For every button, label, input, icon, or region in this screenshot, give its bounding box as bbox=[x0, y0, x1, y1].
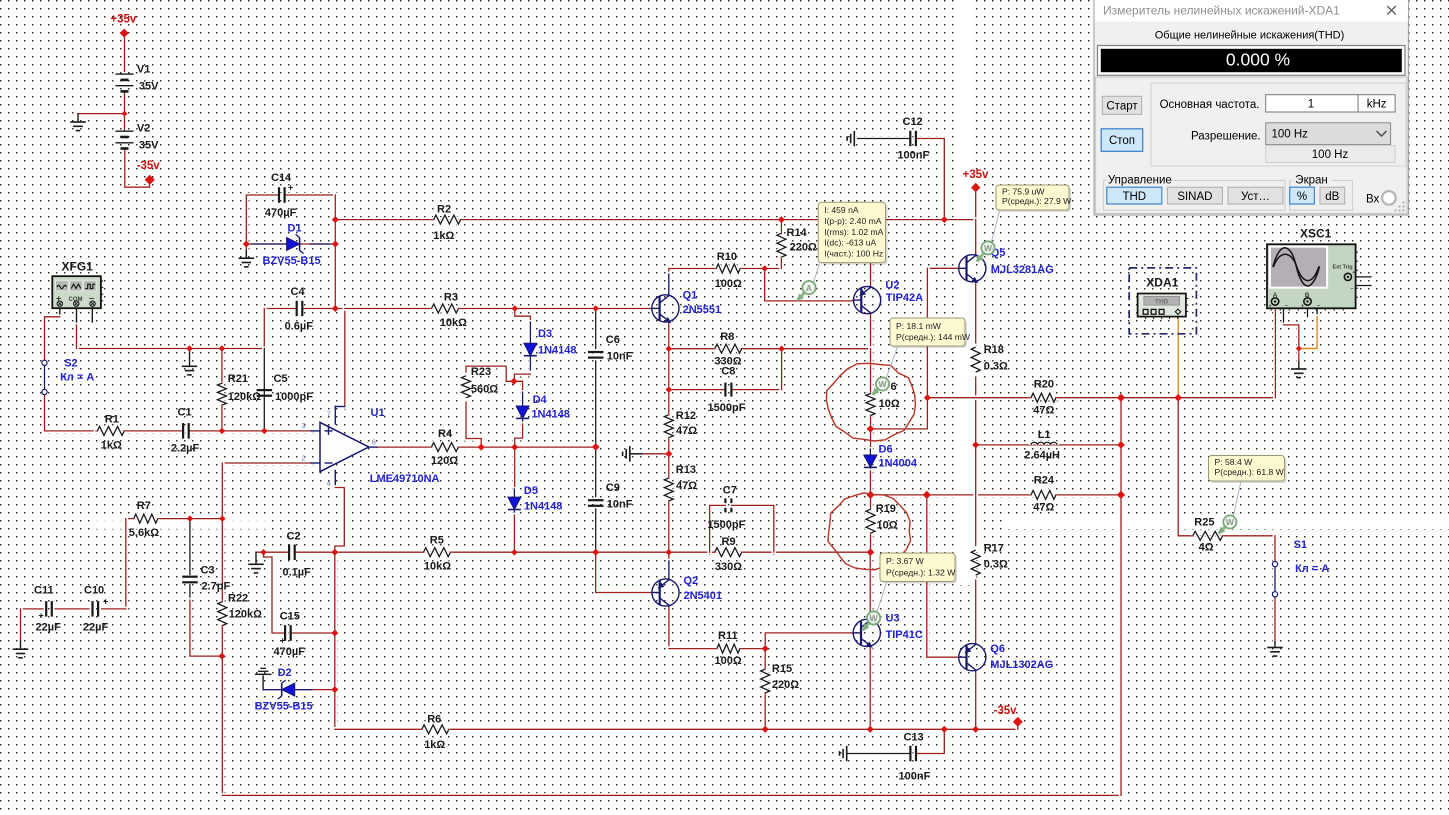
svg-text:Управление: Управление bbox=[1108, 175, 1172, 187]
svg-text:P(средн.): 61.8 W: P(средн.): 61.8 W bbox=[1215, 467, 1285, 477]
svg-text:R7: R7 bbox=[137, 500, 151, 512]
svg-text:1kΩ: 1kΩ bbox=[101, 440, 122, 452]
svg-text:1N4004: 1N4004 bbox=[879, 458, 918, 470]
svg-text:R8: R8 bbox=[720, 331, 734, 343]
svg-text:W: W bbox=[984, 243, 993, 253]
svg-text:35V: 35V bbox=[139, 140, 159, 152]
svg-text:R21: R21 bbox=[228, 373, 248, 385]
svg-text:Вх: Вх bbox=[1366, 194, 1380, 206]
svg-text:-35v: -35v bbox=[994, 705, 1018, 717]
svg-text:+: + bbox=[1352, 270, 1355, 276]
svg-text:R23: R23 bbox=[471, 366, 491, 378]
svg-text:100nF: 100nF bbox=[897, 150, 929, 162]
svg-text:D2: D2 bbox=[278, 667, 292, 679]
svg-text:dB: dB bbox=[1325, 191, 1339, 203]
svg-text:R9: R9 bbox=[722, 536, 736, 548]
svg-text:100 Hz: 100 Hz bbox=[1312, 149, 1349, 161]
svg-text:V2: V2 bbox=[137, 123, 150, 135]
svg-text:Кл = А: Кл = А bbox=[60, 372, 94, 384]
svg-text:W: W bbox=[870, 613, 879, 623]
svg-text:S1: S1 bbox=[1294, 539, 1307, 551]
svg-text:C1: C1 bbox=[178, 407, 192, 419]
svg-text:D3: D3 bbox=[538, 328, 552, 340]
svg-text:0.000 %: 0.000 % bbox=[1226, 50, 1290, 70]
svg-text:Стоп: Стоп bbox=[1109, 135, 1135, 147]
svg-text:100nF: 100nF bbox=[899, 771, 931, 783]
svg-text:2.2µF: 2.2µF bbox=[171, 443, 200, 455]
svg-text:MJL3281AG: MJL3281AG bbox=[991, 264, 1054, 276]
svg-text:U3: U3 bbox=[886, 613, 900, 625]
svg-text:10kΩ: 10kΩ bbox=[440, 317, 467, 329]
svg-text:L1: L1 bbox=[1038, 429, 1051, 441]
svg-text:R19: R19 bbox=[876, 503, 896, 515]
svg-text:+35v: +35v bbox=[110, 14, 137, 26]
svg-text:R1: R1 bbox=[105, 414, 119, 426]
svg-text:P(средн.): 1.32 W: P(средн.): 1.32 W bbox=[886, 568, 956, 578]
svg-text:Уст…: Уст… bbox=[1241, 191, 1270, 203]
svg-text:I(p-p): 2.40 mA: I(p-p): 2.40 mA bbox=[824, 216, 882, 226]
svg-text:2: 2 bbox=[301, 454, 305, 463]
svg-text:BZV55-B15: BZV55-B15 bbox=[255, 701, 313, 713]
svg-text:+35v: +35v bbox=[963, 169, 990, 181]
svg-text:R2: R2 bbox=[437, 204, 451, 216]
svg-text:LME49710NA: LME49710NA bbox=[370, 473, 440, 485]
svg-text:R25: R25 bbox=[1194, 517, 1214, 529]
svg-text:1N4148: 1N4148 bbox=[538, 345, 577, 357]
svg-text:10Ω: 10Ω bbox=[879, 398, 900, 410]
svg-text:2N5401: 2N5401 bbox=[684, 590, 723, 602]
svg-text:D4: D4 bbox=[533, 394, 548, 406]
svg-text:XSC1: XSC1 bbox=[1300, 226, 1332, 240]
svg-text:W: W bbox=[1226, 517, 1235, 527]
svg-text:35V: 35V bbox=[139, 81, 159, 93]
svg-text:1500pF: 1500pF bbox=[708, 402, 746, 414]
svg-text:+: + bbox=[1301, 304, 1304, 310]
svg-text:1500pF: 1500pF bbox=[707, 519, 745, 531]
svg-text:3: 3 bbox=[301, 421, 305, 430]
svg-text:MJL1302AG: MJL1302AG bbox=[990, 659, 1053, 671]
svg-text:P: 3.67 W: P: 3.67 W bbox=[886, 556, 925, 566]
svg-text:22µF: 22µF bbox=[36, 622, 62, 634]
svg-text:C9: C9 bbox=[606, 482, 620, 494]
svg-text:−: − bbox=[1317, 304, 1320, 310]
svg-text:1N4148: 1N4148 bbox=[524, 501, 563, 513]
svg-text:1kΩ: 1kΩ bbox=[433, 230, 454, 242]
svg-text:2N5551: 2N5551 bbox=[683, 304, 722, 316]
svg-text:7: 7 bbox=[327, 410, 331, 419]
svg-text:−: − bbox=[1351, 287, 1354, 293]
svg-text:D6: D6 bbox=[879, 444, 893, 456]
svg-text:Разрешение.: Разрешение. bbox=[1191, 131, 1261, 143]
svg-text:Q6: Q6 bbox=[990, 643, 1005, 655]
svg-text:R3: R3 bbox=[444, 291, 458, 303]
svg-text:R13: R13 bbox=[676, 464, 696, 476]
svg-text:10kΩ: 10kΩ bbox=[424, 561, 451, 573]
svg-text:+: + bbox=[39, 611, 44, 621]
svg-text:TIP42A: TIP42A bbox=[886, 292, 923, 304]
svg-text:0.3Ω: 0.3Ω bbox=[984, 361, 1008, 373]
svg-text:10nF: 10nF bbox=[607, 351, 633, 363]
svg-text:C13: C13 bbox=[904, 732, 924, 744]
svg-text:R17: R17 bbox=[984, 543, 1004, 555]
svg-text:D5: D5 bbox=[524, 485, 538, 497]
svg-text:U2: U2 bbox=[885, 280, 899, 292]
svg-text:I(dc): -613 uA: I(dc): -613 uA bbox=[824, 238, 876, 248]
svg-text:220Ω: 220Ω bbox=[790, 242, 817, 254]
svg-text:+: + bbox=[288, 183, 293, 193]
svg-text:10nF: 10nF bbox=[607, 499, 633, 511]
svg-text:W: W bbox=[878, 379, 887, 389]
svg-text:220Ω: 220Ω bbox=[772, 679, 799, 691]
svg-text:120Ω: 120Ω bbox=[431, 455, 458, 467]
svg-text:I(част.): 100 Hz: I(част.): 100 Hz bbox=[824, 249, 883, 259]
svg-text:6: 6 bbox=[891, 381, 897, 393]
svg-text:TIP41C: TIP41C bbox=[886, 629, 923, 641]
svg-text:R14: R14 bbox=[787, 227, 808, 239]
svg-text:D1: D1 bbox=[288, 223, 302, 235]
svg-text:U1: U1 bbox=[371, 407, 385, 419]
svg-text:C6: C6 bbox=[606, 334, 620, 346]
svg-text:560Ω: 560Ω bbox=[471, 384, 498, 396]
svg-text:10Ω: 10Ω bbox=[877, 520, 898, 532]
svg-text:THD: THD bbox=[1155, 298, 1169, 305]
svg-text:SINAD: SINAD bbox=[1177, 191, 1212, 203]
svg-text:1: 1 bbox=[1308, 99, 1314, 111]
svg-text:1000pF: 1000pF bbox=[275, 391, 313, 403]
svg-text:100Ω: 100Ω bbox=[715, 278, 742, 290]
svg-text:22µF: 22µF bbox=[83, 622, 109, 634]
svg-text:S2: S2 bbox=[64, 358, 77, 370]
svg-text:C10: C10 bbox=[84, 585, 104, 597]
svg-text:47Ω: 47Ω bbox=[676, 480, 697, 492]
svg-text:R20: R20 bbox=[1034, 379, 1054, 391]
svg-text:R5: R5 bbox=[430, 535, 444, 547]
svg-text:0.3Ω: 0.3Ω bbox=[984, 559, 1008, 571]
svg-text:5.6kΩ: 5.6kΩ bbox=[129, 527, 159, 539]
svg-text:C5: C5 bbox=[274, 373, 288, 385]
svg-text:R15: R15 bbox=[772, 663, 792, 675]
svg-text:0.1µF: 0.1µF bbox=[283, 567, 312, 579]
svg-text:6: 6 bbox=[372, 437, 376, 446]
svg-text:P(средн.): 27.9 W: P(средн.): 27.9 W bbox=[1002, 196, 1072, 206]
svg-text:2.7pF: 2.7pF bbox=[202, 581, 231, 593]
svg-text:4: 4 bbox=[327, 479, 331, 488]
svg-text:R11: R11 bbox=[718, 630, 738, 642]
svg-text:P: 75.9 uW: P: 75.9 uW bbox=[1002, 187, 1045, 197]
svg-text:+: + bbox=[280, 636, 285, 646]
svg-text:-35v: -35v bbox=[137, 160, 161, 172]
svg-text:P: 18.1 mW: P: 18.1 mW bbox=[896, 321, 942, 331]
svg-text:0.6µF: 0.6µF bbox=[285, 321, 314, 333]
svg-text:Измеритель нелинейных искажени: Измеритель нелинейных искажений-XDA1 bbox=[1103, 4, 1340, 18]
svg-text:470µF: 470µF bbox=[274, 646, 306, 658]
svg-text:BZV55-B15: BZV55-B15 bbox=[263, 255, 321, 267]
svg-text:120kΩ: 120kΩ bbox=[229, 609, 262, 621]
svg-text:Q1: Q1 bbox=[683, 290, 698, 302]
svg-text:Старт: Старт bbox=[1106, 100, 1138, 112]
svg-text:C15: C15 bbox=[280, 611, 300, 623]
svg-text:Общие нелинейные искажения(THD: Общие нелинейные искажения(THD) bbox=[1155, 30, 1345, 42]
svg-text:4Ω: 4Ω bbox=[1199, 542, 1214, 554]
svg-text:100 Hz: 100 Hz bbox=[1272, 129, 1309, 141]
svg-text:C7: C7 bbox=[723, 485, 737, 497]
svg-text:C4: C4 bbox=[291, 286, 306, 298]
svg-text:C8: C8 bbox=[721, 366, 735, 378]
svg-text:P: 58.4 W: P: 58.4 W bbox=[1215, 457, 1254, 467]
svg-text:100Ω: 100Ω bbox=[715, 655, 742, 667]
svg-text:2.64µH: 2.64µH bbox=[1024, 450, 1060, 462]
svg-text:Ext Trig: Ext Trig bbox=[1333, 264, 1353, 270]
svg-text:R18: R18 bbox=[984, 344, 1004, 356]
svg-text:330Ω: 330Ω bbox=[715, 561, 742, 573]
svg-text:R6: R6 bbox=[427, 714, 441, 726]
svg-text:I(rms): 1.02 mA: I(rms): 1.02 mA bbox=[824, 227, 883, 237]
svg-text:Основная частота.: Основная частота. bbox=[1160, 99, 1260, 111]
svg-text:C12: C12 bbox=[903, 116, 923, 128]
svg-text:kHz: kHz bbox=[1367, 99, 1387, 111]
svg-text:%: % bbox=[1297, 191, 1307, 203]
svg-text:V1: V1 bbox=[137, 64, 150, 76]
svg-text:−: − bbox=[1285, 304, 1288, 310]
svg-text:1kΩ: 1kΩ bbox=[424, 739, 445, 751]
svg-text:Кл = А: Кл = А bbox=[1295, 563, 1329, 575]
svg-text:THD: THD bbox=[1122, 191, 1146, 203]
svg-text:R4: R4 bbox=[438, 428, 453, 440]
svg-text:A: A bbox=[806, 283, 812, 293]
svg-text:47Ω: 47Ω bbox=[1033, 405, 1054, 417]
svg-text:R10: R10 bbox=[717, 251, 737, 263]
svg-text:Q2: Q2 bbox=[684, 575, 699, 587]
svg-text:I: 459 nA: I: 459 nA bbox=[824, 205, 859, 215]
svg-text:C11: C11 bbox=[34, 585, 54, 597]
svg-text:47Ω: 47Ω bbox=[676, 425, 697, 437]
svg-text:R24: R24 bbox=[1034, 474, 1055, 486]
svg-text:C3: C3 bbox=[201, 565, 215, 577]
svg-text:XDA1: XDA1 bbox=[1146, 276, 1178, 290]
svg-text:P(средн.): 144 mW: P(средн.): 144 mW bbox=[896, 332, 971, 342]
svg-text:47Ω: 47Ω bbox=[1033, 502, 1054, 514]
svg-text:R12: R12 bbox=[676, 410, 696, 422]
svg-text:+: + bbox=[103, 597, 108, 607]
svg-text:120kΩ: 120kΩ bbox=[228, 391, 261, 403]
svg-text:Экран: Экран bbox=[1295, 175, 1327, 187]
svg-text:1N4148: 1N4148 bbox=[531, 409, 570, 421]
svg-text:470µF: 470µF bbox=[265, 207, 297, 219]
svg-text:C2: C2 bbox=[287, 531, 301, 543]
svg-text:XFG1: XFG1 bbox=[62, 260, 94, 274]
svg-text:R22: R22 bbox=[228, 593, 248, 605]
